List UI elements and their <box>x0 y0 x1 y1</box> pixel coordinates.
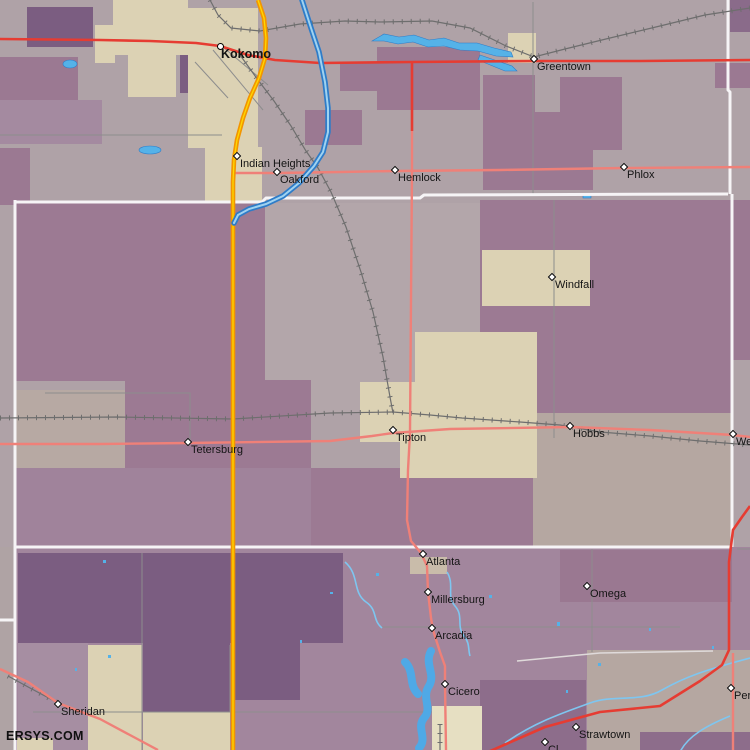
town-label: Kokomo <box>221 48 271 61</box>
town-label: Phlox <box>627 170 655 181</box>
town-label: Millersburg <box>431 595 485 606</box>
town-label: Per <box>734 691 750 702</box>
town-label: Greentown <box>537 62 591 73</box>
watermark: ERSYS.COM <box>6 729 84 743</box>
town-label: Tetersburg <box>191 445 243 456</box>
town-label: Omega <box>590 589 626 600</box>
town-label: Cl <box>548 745 558 750</box>
town-label: Cicero <box>448 687 480 698</box>
town-label: We <box>736 437 750 448</box>
map-viewport[interactable]: KokomoIndian HeightsOakfordHemlockGreent… <box>0 0 750 750</box>
town-label: Atlanta <box>426 557 460 568</box>
town-label: Tipton <box>396 433 426 444</box>
town-label: Hemlock <box>398 173 441 184</box>
town-label: Arcadia <box>435 631 472 642</box>
town-label: Sheridan <box>61 707 105 718</box>
town-label: Strawtown <box>579 730 630 741</box>
town-label: Hobbs <box>573 429 605 440</box>
town-label: Windfall <box>555 280 594 291</box>
map-graphics <box>0 0 750 750</box>
town-label: Oakford <box>280 175 319 186</box>
census-shading-layer <box>0 0 750 750</box>
